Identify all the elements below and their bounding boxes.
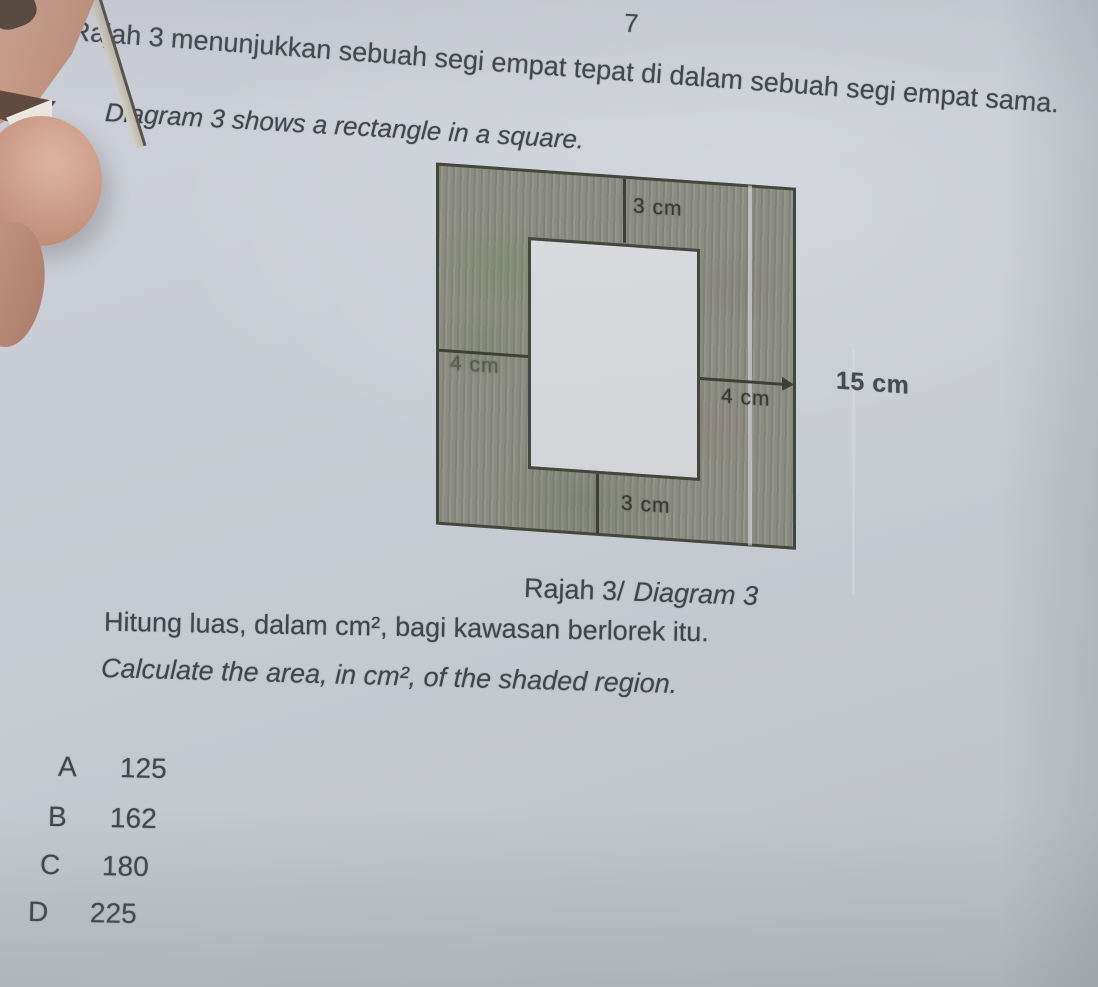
option-letter: B (48, 801, 111, 834)
dim-tick-bottom (596, 474, 599, 534)
inner-rectangle (528, 237, 700, 481)
dim-label-right: 4 cm (721, 384, 771, 411)
caption-malay: Rajah 3/ (524, 573, 626, 607)
option-value: 180 (102, 850, 149, 882)
option-row-b: B162 (48, 801, 157, 835)
option-value: 225 (90, 897, 137, 929)
option-value: 125 (120, 752, 167, 784)
thumb-holding-paper (0, 0, 260, 380)
dim-tick-top (623, 179, 626, 243)
dim-label-outer-side: 15 cm (836, 367, 909, 401)
dim-label-bottom: 3 cm (621, 491, 671, 518)
exam-paper-photo: 7 Rajah 3 menunjukkan sebuah segi empat … (0, 0, 1098, 987)
option-letter: A (58, 751, 121, 784)
option-letter: C (40, 849, 103, 882)
page-number: 7 (623, 8, 639, 40)
diagram-3: 3 cm 4 cm 4 cm 3 cm 15 cm (428, 152, 988, 621)
dim-label-left: 4 cm (450, 352, 500, 379)
instruction-malay: Hitung luas, dalam cm², bagi kawasan ber… (104, 607, 709, 649)
paper-edge (88, 0, 146, 149)
option-row-a: A125 (58, 751, 167, 785)
photo-streak (748, 185, 752, 545)
option-letter: D (28, 896, 91, 929)
caption-english: Diagram 3 (633, 577, 759, 612)
instruction-english: Calculate the area, in cm², of the shade… (101, 653, 678, 700)
arrow-right-icon (782, 377, 794, 392)
option-row-d: D225 (28, 896, 137, 930)
option-value: 162 (110, 802, 157, 834)
dim-label-top: 3 cm (633, 194, 683, 221)
option-row-c: C180 (40, 849, 149, 883)
